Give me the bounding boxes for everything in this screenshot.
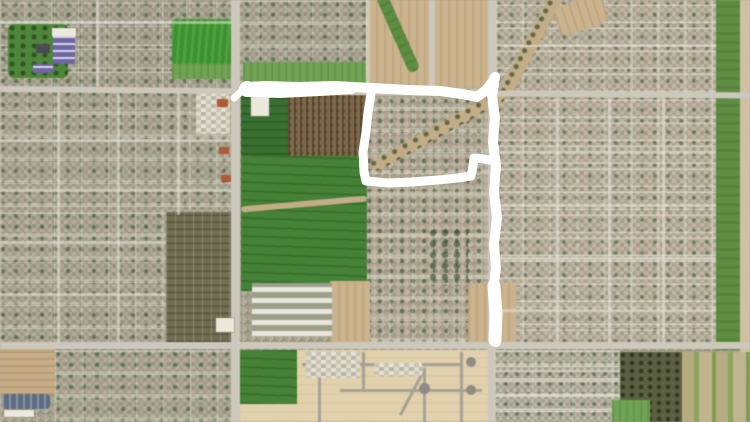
route-annotation-layer	[0, 0, 750, 422]
annotation-start-tail	[234, 90, 243, 98]
annotation-east-line-thick-end	[494, 286, 496, 340]
annotation-top-line-second-pass	[247, 90, 352, 94]
satellite-map[interactable]	[0, 0, 750, 422]
annotation-inner-loop	[363, 94, 494, 183]
